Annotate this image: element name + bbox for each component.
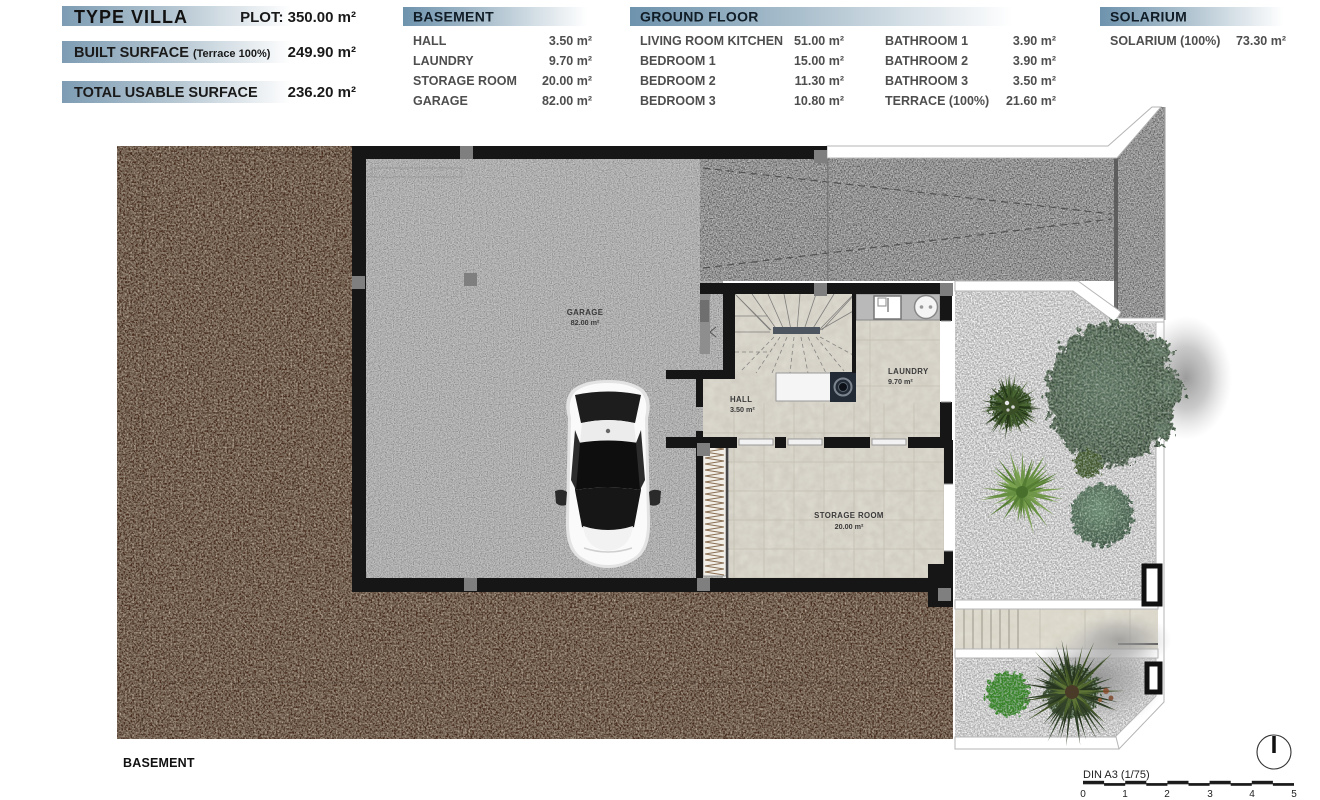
svg-text:9.70 m²: 9.70 m² [549,54,592,68]
svg-text:20.00 m²: 20.00 m² [835,522,864,531]
svg-text:3.50 m²: 3.50 m² [549,34,592,48]
svg-text:TOTAL USABLE SURFACE: TOTAL USABLE SURFACE [74,85,258,101]
svg-text:2: 2 [1164,789,1170,800]
svg-text:15.00 m²: 15.00 m² [794,54,844,68]
svg-text:3.90 m²: 3.90 m² [1013,34,1056,48]
svg-text:PLOT: 350.00 m²: PLOT: 350.00 m² [240,9,356,26]
svg-text:BASEMENT: BASEMENT [413,9,494,25]
svg-text:GARAGE: GARAGE [413,94,468,108]
svg-text:20.00 m²: 20.00 m² [542,74,592,88]
svg-text:4: 4 [1249,789,1255,800]
svg-text:51.00 m²: 51.00 m² [794,34,844,48]
svg-text:HALL: HALL [413,34,447,48]
svg-text:BEDROOM 3: BEDROOM 3 [640,94,716,108]
svg-text:LAUNDRY: LAUNDRY [413,54,474,68]
svg-text:STORAGE ROOM: STORAGE ROOM [814,511,884,520]
svg-text:9.70 m²: 9.70 m² [888,377,913,386]
svg-text:10.80 m²: 10.80 m² [794,94,844,108]
svg-text:HALL: HALL [730,395,752,404]
svg-text:5: 5 [1291,789,1297,800]
svg-text:236.20 m²: 236.20 m² [288,84,356,101]
svg-text:BATHROOM 3: BATHROOM 3 [885,74,968,88]
svg-text:3.90 m²: 3.90 m² [1013,54,1056,68]
svg-text:21.60 m²: 21.60 m² [1006,94,1056,108]
svg-text:BUILT SURFACE (Terrace 100%): BUILT SURFACE (Terrace 100%) [74,45,271,61]
svg-text:GARAGE: GARAGE [567,308,604,317]
svg-text:73.30 m²: 73.30 m² [1236,34,1286,48]
svg-text:SOLARIUM (100%): SOLARIUM (100%) [1110,34,1220,48]
svg-text:82.00 m²: 82.00 m² [571,318,600,327]
svg-text:82.00 m²: 82.00 m² [542,94,592,108]
svg-text:TYPE VILLA: TYPE VILLA [74,7,188,27]
svg-text:3.50 m²: 3.50 m² [1013,74,1056,88]
svg-text:1: 1 [1122,789,1128,800]
svg-text:LIVING ROOM KITCHEN: LIVING ROOM KITCHEN [640,34,783,48]
svg-text:BEDROOM 1: BEDROOM 1 [640,54,716,68]
svg-text:SOLARIUM: SOLARIUM [1110,9,1187,25]
svg-text:249.90 m²: 249.90 m² [288,44,356,61]
svg-text:BASEMENT: BASEMENT [123,756,195,770]
svg-text:BATHROOM 1: BATHROOM 1 [885,34,968,48]
svg-text:TERRACE (100%): TERRACE (100%) [885,94,989,108]
svg-text:LAUNDRY: LAUNDRY [888,367,929,376]
svg-text:BEDROOM 2: BEDROOM 2 [640,74,716,88]
svg-text:3: 3 [1207,789,1213,800]
svg-text:3.50 m²: 3.50 m² [730,405,755,414]
svg-text:DIN A3 (1/75): DIN A3 (1/75) [1083,769,1150,781]
svg-text:11.30 m²: 11.30 m² [795,74,844,88]
svg-text:BATHROOM 2: BATHROOM 2 [885,54,968,68]
svg-text:STORAGE ROOM: STORAGE ROOM [413,74,517,88]
svg-text:GROUND FLOOR: GROUND FLOOR [640,9,759,25]
svg-text:0: 0 [1080,789,1086,800]
